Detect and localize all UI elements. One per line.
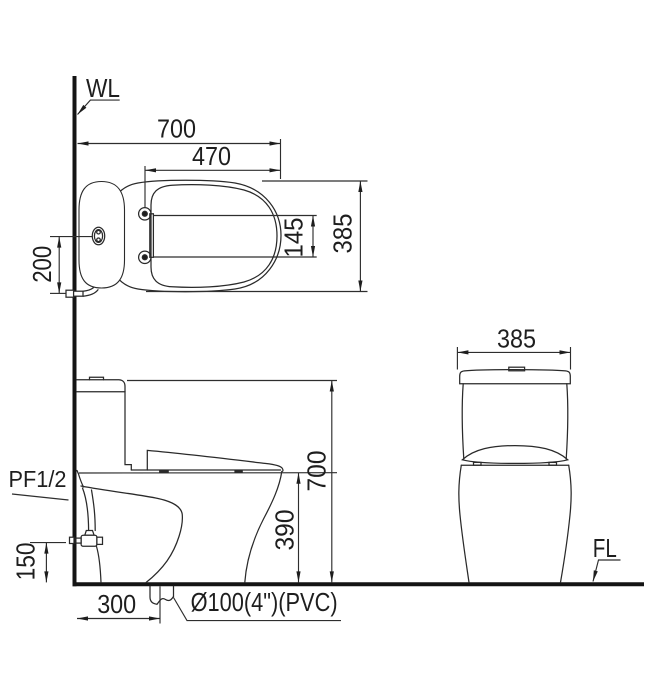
- svg-text:385: 385: [328, 214, 358, 254]
- svg-text:385: 385: [497, 324, 536, 354]
- svg-text:145: 145: [279, 218, 309, 258]
- svg-text:WL: WL: [86, 73, 120, 103]
- svg-text:390: 390: [270, 510, 300, 551]
- svg-text:300: 300: [97, 589, 136, 619]
- svg-text:FL: FL: [593, 533, 617, 563]
- svg-text:700: 700: [157, 114, 196, 144]
- svg-text:700: 700: [302, 451, 332, 492]
- svg-text:470: 470: [192, 141, 231, 171]
- svg-text:200: 200: [27, 246, 57, 283]
- svg-text:150: 150: [10, 542, 40, 580]
- svg-text:Ø100(4")(PVC): Ø100(4")(PVC): [191, 587, 338, 617]
- svg-text:PF1/2: PF1/2: [9, 466, 67, 492]
